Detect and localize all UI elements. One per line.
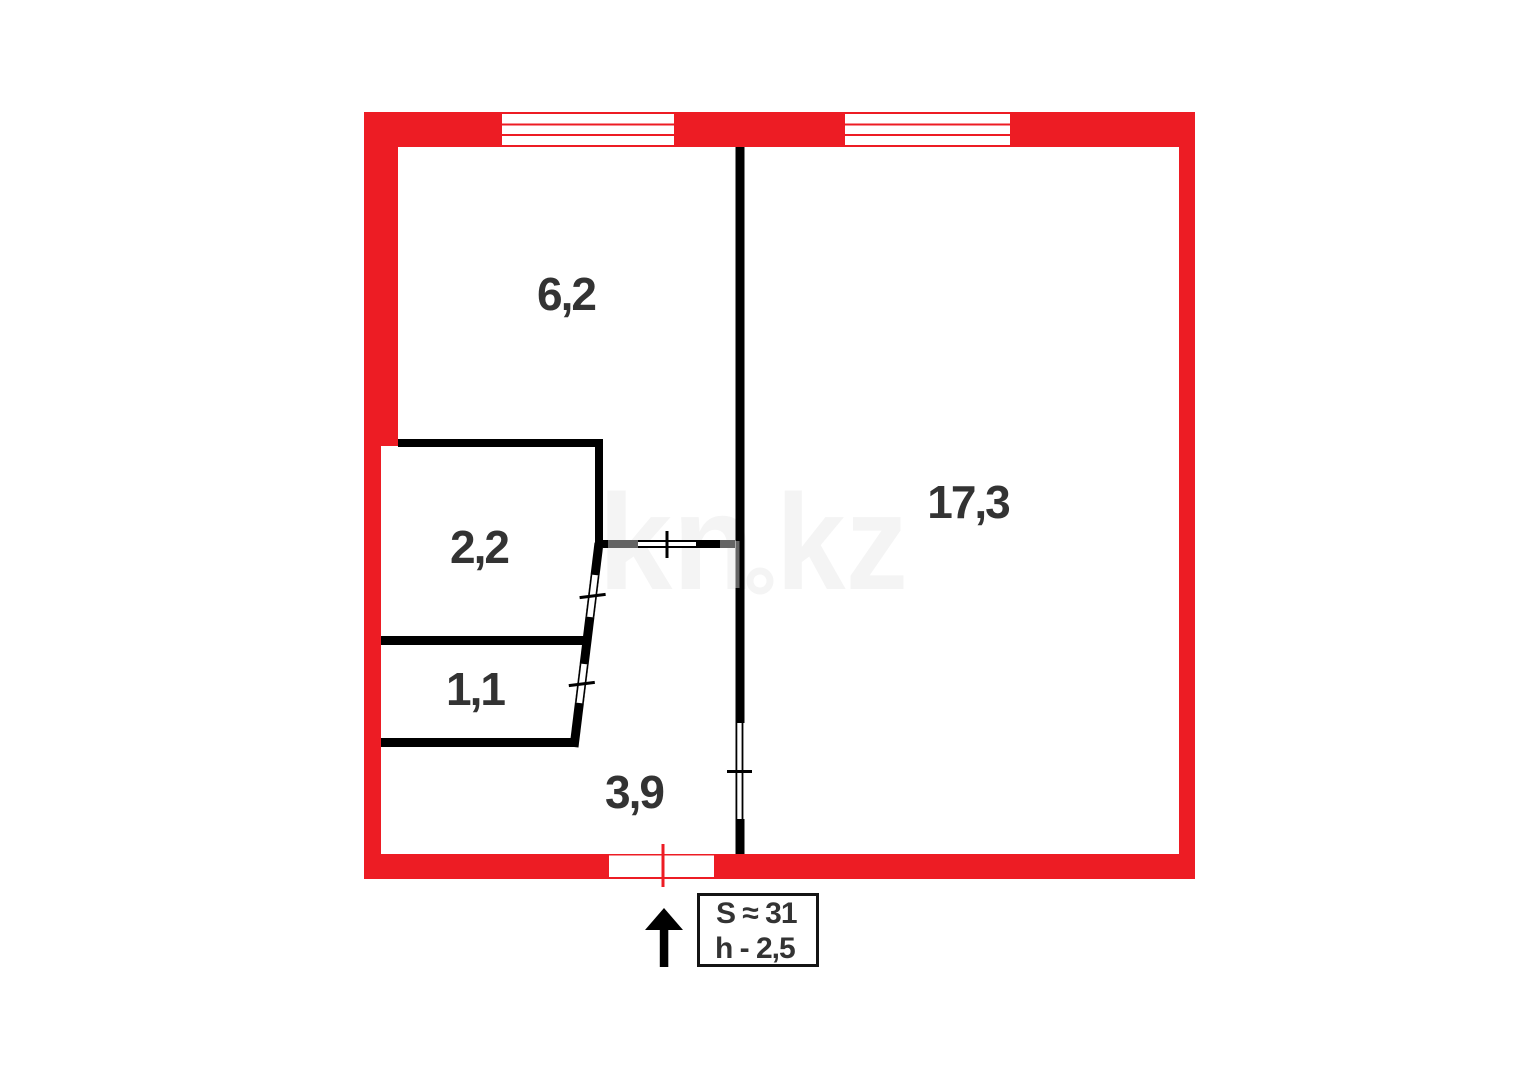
svg-text:3,9: 3,9 xyxy=(605,766,663,818)
svg-text:6,2: 6,2 xyxy=(537,268,595,320)
svg-text:1,1: 1,1 xyxy=(446,663,505,715)
svg-text:2,2: 2,2 xyxy=(450,521,508,573)
svg-text:17,3: 17,3 xyxy=(927,476,1009,528)
svg-text:kz: kz xyxy=(776,466,908,618)
svg-text:h - 2,5: h - 2,5 xyxy=(715,932,795,965)
svg-text:S ≈ 31: S ≈ 31 xyxy=(716,897,797,930)
